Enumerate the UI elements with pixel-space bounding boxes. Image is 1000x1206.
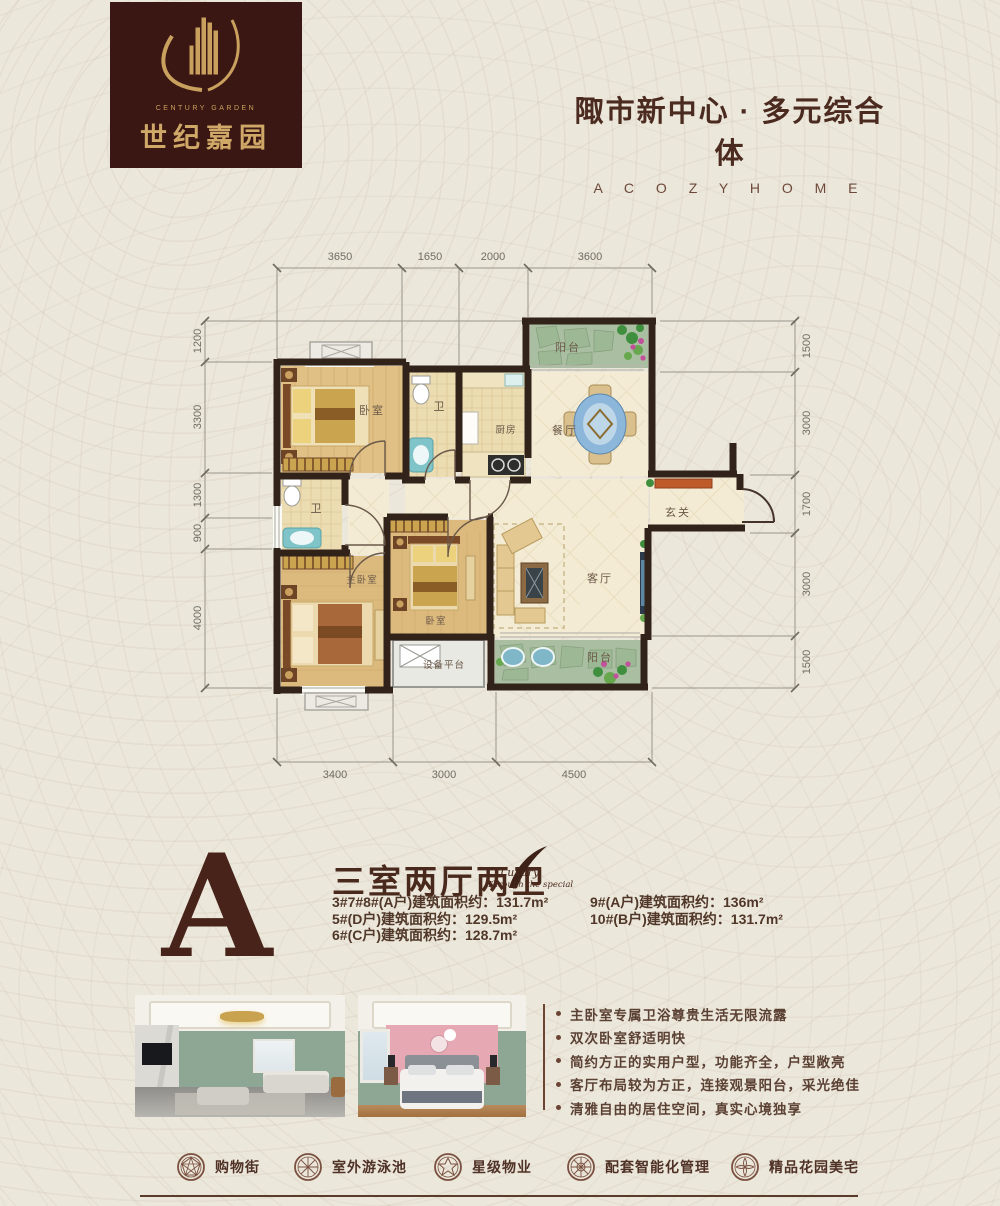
dim-right-1: 1500 bbox=[801, 334, 813, 358]
blanket bbox=[402, 1091, 482, 1103]
spec-line: 6#(C户)建筑面积约：128.7m² bbox=[332, 927, 548, 944]
entry-cabinet bbox=[655, 479, 712, 488]
amenity-label: 购物街 bbox=[215, 1157, 260, 1177]
chandelier bbox=[220, 1011, 264, 1022]
room-label-bedroom1: 卧室 bbox=[359, 403, 385, 417]
tv-screen bbox=[142, 1043, 172, 1065]
amenity-label: 配套智能化管理 bbox=[605, 1157, 710, 1177]
dim-top-1: 3650 bbox=[328, 251, 352, 263]
room-label-balcony-top: 阳台 bbox=[555, 340, 581, 354]
feature-item: 双次卧室舒适明快 bbox=[556, 1026, 860, 1050]
script-line1: Luxury bbox=[500, 866, 539, 879]
dim-left-2: 3300 bbox=[192, 405, 204, 429]
amenity-label: 星级物业 bbox=[472, 1157, 532, 1177]
room-label-living: 客厅 bbox=[587, 571, 613, 585]
dim-left-1: 1200 bbox=[192, 329, 204, 353]
dim-top-2: 1650 bbox=[418, 251, 442, 263]
feature-text: 双次卧室舒适明快 bbox=[570, 1027, 686, 1047]
dim-bottom-3: 4500 bbox=[562, 769, 586, 781]
ottoman bbox=[197, 1087, 249, 1105]
brand-name-cn: 世纪嘉园 bbox=[110, 116, 302, 155]
slogan-cn: 陬市新中心 · 多元综合体 bbox=[560, 88, 900, 172]
room-label-equipment: 设备平台 bbox=[423, 659, 465, 671]
bullet-icon bbox=[556, 1105, 561, 1110]
amenity-shopping: 购物街 bbox=[176, 1152, 260, 1182]
feature-text: 清雅自由的居住空间，真实心境独享 bbox=[570, 1098, 802, 1118]
dim-top-4: 3600 bbox=[578, 251, 602, 263]
script-line2: Through the special bbox=[487, 880, 573, 890]
room-label-entry: 玄关 bbox=[665, 505, 691, 519]
bed bbox=[400, 1069, 484, 1109]
dim-right-4: 3000 bbox=[801, 572, 813, 596]
features-list: 主卧室专属卫浴尊贵生活无限流露 双次卧室舒适明快 简约方正的实用户型，功能齐全，… bbox=[556, 1002, 860, 1120]
bullet-icon bbox=[556, 1082, 561, 1087]
specs-left: 3#7#8#(A户)建筑面积约：131.7m² 5#(D户)建筑面积约：129.… bbox=[332, 894, 548, 944]
specs-right: 9#(A户)建筑面积约：136m² 10#(B户)建筑面积约：131.7m² bbox=[590, 894, 783, 927]
bullet-icon bbox=[556, 1011, 561, 1016]
spec-line: 3#7#8#(A户)建筑面积约：131.7m² bbox=[332, 894, 548, 911]
slogan: 陬市新中心 · 多元综合体 A C O Z Y H O M E bbox=[560, 88, 900, 196]
feature-item: 清雅自由的居住空间，真实心境独享 bbox=[556, 1096, 860, 1120]
poster-page: CENTURY GARDEN 世纪嘉园 陬市新中心 · 多元综合体 A C O … bbox=[0, 0, 1000, 1206]
brand-logo: CENTURY GARDEN 世纪嘉园 bbox=[110, 2, 302, 168]
bullet-icon bbox=[556, 1035, 561, 1040]
room-label-master: 主卧室 bbox=[346, 574, 378, 586]
medallion-icon bbox=[566, 1152, 596, 1182]
spec-line: 10#(B户)建筑面积约：131.7m² bbox=[590, 911, 783, 928]
feature-text: 客厅布局较为方正，连接观景阳台，采光绝佳 bbox=[570, 1074, 860, 1094]
feature-item: 客厅布局较为方正，连接观景阳台，采光绝佳 bbox=[556, 1073, 860, 1097]
slogan-en: A C O Z Y H O M E bbox=[560, 180, 900, 196]
medallion-icon bbox=[730, 1152, 760, 1182]
dim-left-4: 900 bbox=[192, 524, 204, 542]
sofa bbox=[263, 1071, 329, 1093]
dim-bottom-1: 3400 bbox=[323, 769, 347, 781]
feature-text: 主卧室专属卫浴尊贵生活无限流露 bbox=[570, 1004, 788, 1024]
dim-bottom-2: 3000 bbox=[432, 769, 456, 781]
medallion-icon bbox=[293, 1152, 323, 1182]
lamp bbox=[490, 1055, 497, 1067]
brand-name-en: CENTURY GARDEN bbox=[110, 105, 302, 112]
features-divider bbox=[543, 1004, 545, 1110]
amenity-pool: 室外游泳池 bbox=[293, 1152, 407, 1182]
side-table bbox=[331, 1077, 345, 1097]
amenity-garden: 精品花园美宅 bbox=[730, 1152, 859, 1182]
spec-line: 5#(D户)建筑面积约：129.5m² bbox=[332, 911, 548, 928]
dim-right-2: 3000 bbox=[801, 411, 813, 435]
nightstand bbox=[486, 1067, 500, 1085]
amenity-label: 精品花园美宅 bbox=[769, 1157, 859, 1177]
unit-letter: A bbox=[162, 836, 272, 978]
window bbox=[253, 1039, 295, 1073]
lamp bbox=[388, 1055, 395, 1067]
nightstand bbox=[384, 1067, 398, 1085]
dim-left-3: 1300 bbox=[192, 483, 204, 507]
medallion-icon bbox=[433, 1152, 463, 1182]
pillow bbox=[408, 1065, 436, 1075]
building-logo-icon bbox=[110, 2, 302, 102]
room-label-kitchen: 厨房 bbox=[495, 424, 516, 436]
bottom-rule bbox=[140, 1195, 858, 1197]
medallion-icon bbox=[176, 1152, 206, 1182]
room-label-dining: 餐厅 bbox=[552, 423, 578, 437]
floor-plan: 卧室 卫 厨房 餐厅 阳台 玄关 客厅 卫 主卧室 卧室 设备平台 阳台 bbox=[150, 235, 850, 835]
amenity-smart: 配套智能化管理 bbox=[566, 1152, 710, 1182]
dim-top-3: 2000 bbox=[481, 251, 505, 263]
feature-text: 简约方正的实用户型，功能齐全，户型敞亮 bbox=[570, 1051, 846, 1071]
room-label-bath2: 卫 bbox=[311, 503, 324, 515]
amenity-label: 室外游泳池 bbox=[332, 1157, 407, 1177]
room-label-balcony-bottom: 阳台 bbox=[587, 650, 613, 664]
feature-item: 简约方正的实用户型，功能齐全，户型敞亮 bbox=[556, 1049, 860, 1073]
wall-art bbox=[444, 1029, 456, 1041]
bedroom-photo bbox=[358, 995, 526, 1117]
bullet-icon bbox=[556, 1058, 561, 1063]
living-room-photo bbox=[135, 995, 345, 1117]
spec-line: 9#(A户)建筑面积约：136m² bbox=[590, 894, 783, 911]
dim-right-3: 1700 bbox=[801, 492, 813, 516]
amenity-property: 星级物业 bbox=[433, 1152, 532, 1182]
room-label-bath1: 卫 bbox=[434, 401, 447, 413]
dim-left-5: 4000 bbox=[192, 606, 204, 630]
room-label-bedroom2: 卧室 bbox=[425, 615, 446, 627]
dim-right-5: 1500 bbox=[801, 650, 813, 674]
pillow bbox=[446, 1065, 474, 1075]
feature-item: 主卧室专属卫浴尊贵生活无限流露 bbox=[556, 1002, 860, 1026]
